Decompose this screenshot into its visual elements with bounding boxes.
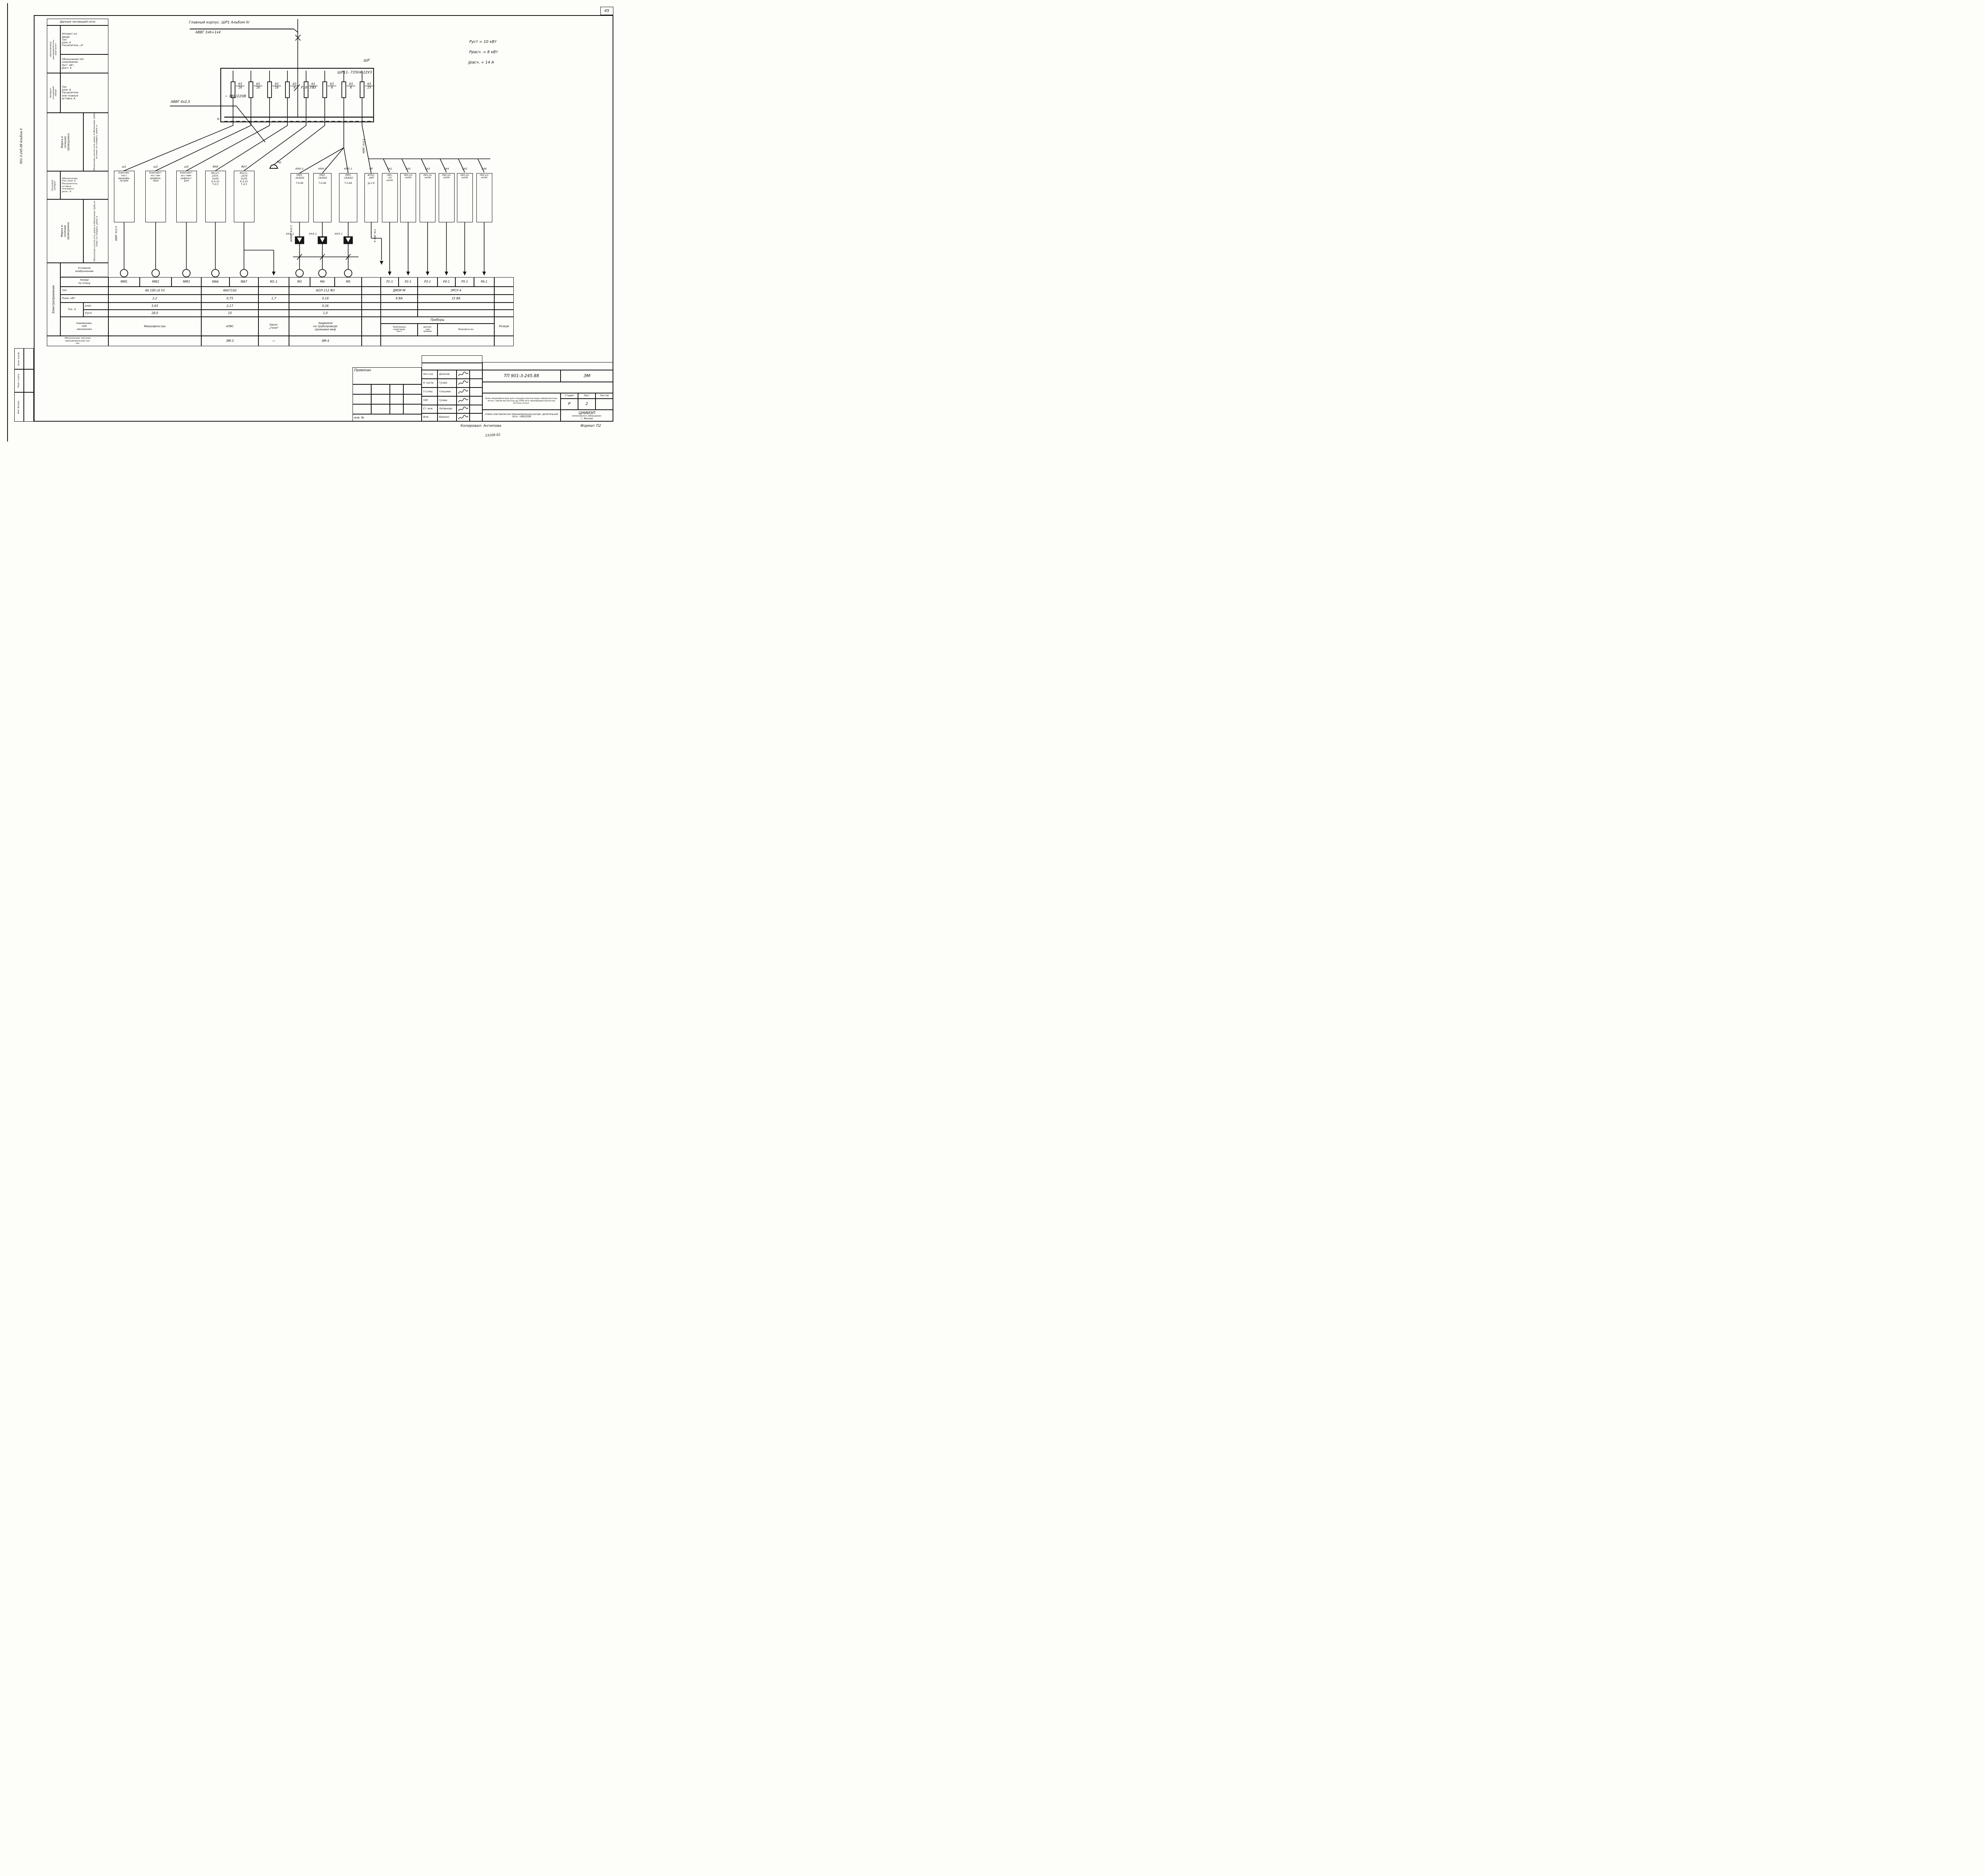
tb-name: Гусева — [437, 379, 457, 388]
margin-stamp-blank-1 — [24, 369, 34, 392]
starter-label-ш1: ш1 — [113, 165, 135, 168]
table-ipusk-cell — [418, 310, 494, 317]
table-pnom-cell — [494, 295, 514, 303]
table-inom-cell: 2,17 — [201, 303, 258, 310]
sidebar-wire-mark-1: Марка и сечение проводника — [47, 113, 83, 171]
tb-grid-cell — [390, 394, 403, 404]
sidebar-header: Данные питающей сети — [47, 19, 108, 25]
starter-box-ш3: Комплект- но с мик- рофильт- ром — [176, 171, 197, 222]
feeder-cable: АВВГ 3х6+1х4 — [195, 31, 275, 35]
table-type-cell: ЭРСУ-4 — [418, 287, 494, 295]
table-pnom-cell: 0,75 — [201, 295, 258, 303]
starter-box-QF: АП50- -2МТ Jр-1,6 — [364, 173, 378, 222]
tb-inv: инв. № — [353, 414, 422, 422]
starter-label-SA5: SA5 — [454, 168, 476, 171]
starter-label-КМ5-1: КМ5-1 — [337, 168, 359, 171]
table-plan-cell: М4 — [310, 277, 335, 287]
sidebar-type: тип — [60, 287, 108, 295]
tb-signature — [457, 388, 470, 396]
feeder-title: Главный корпус. ШР1 Альбом IV — [189, 21, 304, 25]
tb-date — [470, 370, 482, 379]
table-pnom-cell: 15 ВА — [418, 295, 494, 303]
tb-name: Воронко — [437, 413, 457, 422]
table-pnom-cell — [362, 295, 381, 303]
table-type-cell: ДМЭР-М — [381, 287, 418, 295]
table-pnom-cell: 1,7 — [258, 295, 289, 303]
margin-stamp-blank-0 — [24, 348, 34, 369]
tb-sheet: 2 — [578, 399, 595, 410]
sidebar-outgoing-rot: Аппарат отходящей линии — [47, 73, 60, 113]
tb-date — [470, 396, 482, 405]
table-name-cell: Насос „Гном“ — [258, 317, 289, 336]
table-pribory-cell: дренаж- ный приямок — [418, 324, 437, 336]
starter-label-SA2: SA2 — [397, 168, 419, 171]
sidebar-starter-rot: Пусковой аппарат — [47, 171, 60, 199]
tb-grid-cell — [353, 394, 371, 404]
sidebar-input-apparatus: Аппарат на вводе Тип Jном. А Расцепитель… — [60, 25, 108, 54]
table-plan-cell: Р1-1 — [381, 277, 399, 287]
tb-doc: ТП 901-3-245.88 — [482, 370, 561, 382]
table-pribory-cell: Трубопровод сырой воды поз.1 — [381, 324, 418, 336]
table-plan-cell: МА7 — [229, 277, 258, 287]
table-pnom-cell: 2,2 — [108, 295, 201, 303]
tb-grid-cell — [353, 404, 371, 414]
table-draw-cell — [362, 336, 381, 346]
table-plan-cell — [362, 277, 381, 287]
starter-box-ЯА7: Я5111- -2474 УхЛ4 К-3,15 Т-2,5 — [234, 171, 254, 222]
table-draw-cell: — — [258, 336, 289, 346]
tb-grid-cell — [353, 384, 371, 394]
table-type-cell: 4АХ71А2 — [201, 287, 258, 295]
margin-stamp-2: Инв. №подл. — [14, 392, 24, 422]
tb-stage-h: Стадия — [561, 393, 578, 399]
starter-box-SA5: ПВЗ-10/ /м356 — [457, 173, 473, 222]
tb-grid-cell — [390, 404, 403, 414]
cable-label-kk: АКВВГ 4х2,5 — [290, 215, 296, 253]
load-info-pust: Руст = 10 кВт — [469, 40, 529, 44]
table-name-cell: АПВС — [201, 317, 258, 336]
voltage-label: ~ 380/220В — [225, 94, 268, 99]
cable-label-qf: АВВГ 4х2,5 — [362, 126, 369, 166]
sidebar-symbol: Условное изображение — [60, 263, 108, 277]
tb-stage: Р — [561, 399, 578, 410]
table-name-cell: Задвижки на трубопроводе промывки мкф — [289, 317, 362, 336]
tb-grid-cell — [403, 394, 422, 404]
table-plan-cell: ММ1 — [108, 277, 140, 287]
table-pnom-cell: 0,18 — [289, 295, 362, 303]
margin-stamp-blank-2 — [24, 392, 34, 422]
sidebar-wire-fine-2: Обозначение участка сети; длина, м Обозн… — [83, 199, 108, 263]
tb-org: ЦНИИЭПинженерного оборудован.г. Москва — [561, 410, 613, 422]
tb-head-row1 — [422, 355, 482, 363]
fuse-rating: 636 — [309, 83, 318, 89]
table-pribory-header: Приборы — [381, 317, 494, 324]
table-pribory-cell: Микрофильтры — [437, 324, 494, 336]
tb-top-empty — [482, 362, 613, 370]
tb-code: ЭМ — [561, 370, 613, 382]
table-type-cell — [258, 287, 289, 295]
table-draw-cell — [108, 336, 201, 346]
starter-label-ЯА6: ЯА6 — [204, 165, 227, 168]
starter-box-КМ4-1: ПМЛ- -163002 Т-0,4А — [313, 173, 331, 222]
tb-name: Гусева — [437, 396, 457, 405]
tb-signature — [457, 379, 470, 388]
starter-label-ш3: ш3 — [175, 165, 198, 168]
sidebar-wire-mark-2: Марка и сечение проводника — [47, 199, 83, 263]
table-plan-cell: Р2-1 — [399, 277, 418, 287]
table-draw-cell: ЭМ-3 — [201, 336, 258, 346]
fuse-rating: 636 — [347, 83, 355, 89]
sidebar-draw: Обозначение чертежа принципиальной схе- … — [47, 336, 108, 346]
relay-label-КК4-1: КК4-1 — [303, 233, 317, 236]
tb-role: ГИП — [422, 396, 437, 405]
tb-grid-cell — [390, 384, 403, 394]
fuse-rating: 6316 — [254, 83, 262, 89]
starter-label-КМ3-1: КМ3-1 — [289, 168, 311, 171]
sidebar-tok: Ток. А — [60, 303, 83, 317]
tb-role: Инж. — [422, 413, 437, 422]
table-inom-cell — [381, 303, 418, 310]
sidebar-starter-cell: Обозначение, Тип; Jном. А Расцепитель; у… — [60, 171, 108, 199]
table-plan-cell — [494, 277, 514, 287]
tb-name: Литвинова — [437, 405, 457, 413]
tb-role: Гл.спец — [422, 388, 437, 396]
table-ipusk-cell — [494, 310, 514, 317]
drawing-sheet: 45 Главный корпус. ШР1 Альбом IV АВВГ 3х… — [0, 0, 622, 445]
starter-box-ш2: Комплект- но с ми- крофиль- тром — [145, 171, 166, 222]
table-plan-cell: М1-1 — [258, 277, 289, 287]
tb-grid-cell — [371, 394, 390, 404]
table-plan-cell: М3 — [289, 277, 310, 287]
starter-box-SA3: ПВЗ-10/ /м356 — [420, 173, 436, 222]
table-reserve-cell: Резерв — [494, 317, 514, 336]
starter-label-ЯА7: ЯА7 — [233, 165, 255, 168]
table-inom-cell — [418, 303, 494, 310]
bell-label: Рш — [277, 160, 289, 164]
tb-date — [470, 413, 482, 422]
table-ipusk-cell — [362, 310, 381, 317]
tb-sheets-h: Листов — [595, 393, 613, 399]
tb-sheet-title: Схема электрическая принципиальная распр… — [482, 410, 561, 422]
table-type-cell — [362, 287, 381, 295]
tb-head-row2 — [422, 363, 482, 370]
table-inom-cell — [258, 303, 289, 310]
load-info-prasch: Ррасч. = 8 кВт — [469, 50, 529, 54]
panel-label: ШР — [364, 59, 380, 63]
fuse-rating: 6316 — [236, 83, 245, 89]
sidebar-busway-rot: Шинопровод распределитель- ный пункт — [47, 25, 60, 73]
sidebar-plan: Номер по плану — [60, 277, 108, 287]
fuse-rating: 636 — [290, 83, 299, 89]
table-ipusk-cell: 1,0 — [289, 310, 362, 317]
panel-type: ШР11- 73504-22У3 — [316, 71, 372, 75]
relay-label-КК5-1: КК5-1 — [328, 233, 343, 236]
starter-label-SA6: SA6 — [473, 168, 495, 171]
cable-label-sh1: АВВГ 4х2,5 — [115, 217, 121, 251]
table-plan-cell: МА6 — [201, 277, 229, 287]
starter-box-ЯА6: Я5111- 2474- УхЛ4 К-3,15 Т-2,5 — [205, 171, 226, 222]
table-plan-cell: Р3-1 — [418, 277, 437, 287]
sidebar-pnom: Рном. кВт — [60, 295, 108, 303]
margin-stamp-0: Взам. инв.№ — [14, 348, 24, 369]
sidebar-outgoing-apparatus: Тип Jном. А Расцепитель или плавкая вста… — [60, 73, 108, 113]
sidebar-inom: Jном. — [83, 303, 108, 310]
table-draw-cell: ЭМ-4 — [289, 336, 362, 346]
starter-box-SA2: ПВЗ-10/ /м356 — [400, 173, 416, 222]
tb-role: Н. контр — [422, 379, 437, 388]
table-name-cell — [362, 317, 381, 336]
side-album-label: 901-3-245.88 Альбом II — [20, 118, 26, 174]
starter-box-SA4: ПВЗ-10/ /м356 — [439, 173, 455, 222]
tb-grid-cell — [403, 404, 422, 414]
fuse-rating: 636 — [328, 83, 336, 89]
tb-signature — [457, 396, 470, 405]
neutral-label: N — [217, 118, 223, 121]
table-plan-cell: Р4-1 — [437, 277, 455, 287]
starter-box-SA1: ПВЗ- -10/ /м356 — [382, 173, 398, 222]
starter-box-SA6: ПВЗ-10/ /м356 — [476, 173, 492, 222]
starter-box-КМ5-1: ПМЛ- -163002 Т-0,4А — [339, 173, 357, 222]
load-info-irasch: Jрасч. = 14 А — [468, 60, 528, 65]
table-ipusk-cell — [258, 310, 289, 317]
tb-name: Данилов — [437, 370, 457, 379]
tb-empty-band — [482, 382, 613, 393]
starter-label-ш2: ш2 — [145, 165, 167, 168]
table-type-cell — [494, 287, 514, 295]
cable-label-out: К ВВГ 4х1 — [374, 217, 380, 255]
margin-stamp-1: Подп. и дата — [14, 369, 24, 392]
tb-org3: г. Москва — [581, 418, 593, 420]
table-inom-cell: 5,65 — [108, 303, 201, 310]
sidebar-consumer-rot: Электроприемник — [47, 263, 60, 336]
tb-role: Ст. инж — [422, 405, 437, 413]
sidebar-mech: Наименова- ние механизма — [60, 317, 108, 336]
table-ipusk-cell: 28,0 — [108, 310, 201, 317]
table-ipusk-cell: 10 — [201, 310, 258, 317]
table-plan-cell: ММ2 — [140, 277, 172, 287]
tb-role: Нач отд — [422, 370, 437, 379]
copied-by: Копировал: Антипова — [461, 424, 544, 428]
table-ipusk-cell — [381, 310, 418, 317]
tb-signature — [457, 413, 470, 422]
tb-name: Гольцман — [437, 388, 457, 396]
table-draw-cell — [494, 336, 514, 346]
fuse-rating: 6325 — [365, 83, 374, 89]
table-type-cell: АОЛ-112 Ф3 — [289, 287, 362, 295]
table-inom-cell: 0,36 — [289, 303, 362, 310]
tb-signature — [457, 405, 470, 413]
table-plan-cell: ММ3 — [172, 277, 201, 287]
tb-date — [470, 405, 482, 413]
tb-bind: Привязан — [353, 367, 422, 384]
fuse-rating: 6316 — [272, 83, 281, 89]
sidebar-ipusk: Jпуск. — [83, 310, 108, 317]
tb-grid-cell — [371, 404, 390, 414]
tb-sheets — [595, 399, 613, 410]
table-draw-cell — [381, 336, 494, 346]
starter-label-КМ4-1: КМ4-1 — [311, 168, 333, 171]
table-plan-cell: М5 — [335, 277, 362, 287]
tb-sheet-h: Лист — [578, 393, 595, 399]
tb-date — [470, 379, 482, 388]
table-plan-cell: Р5-1 — [455, 277, 474, 287]
table-inom-cell — [362, 303, 381, 310]
tb-date — [470, 388, 482, 396]
table-pnom-cell: 8 ВА — [381, 295, 418, 303]
sidebar-wire-fine-1: Обозначение участка сети; длина, м Обозн… — [83, 113, 108, 171]
tb-project: Блок микрофильтров для станции очистки в… — [482, 393, 561, 410]
tb-signature — [457, 370, 470, 379]
format-label: Формат П2 — [580, 424, 616, 428]
starter-box-ш1: Комплек- тно с микрофи- льтром — [114, 171, 135, 222]
table-inom-cell — [494, 303, 514, 310]
branch-cable-label: АВВГ 4х2,5 — [171, 100, 234, 104]
tb-grid-cell — [403, 384, 422, 394]
tb-grid-cell — [371, 384, 390, 394]
sidebar-designation-voltage: Обозначение,тип напряжение, Руст. кВт, J… — [60, 54, 108, 73]
table-plan-cell: Р6-1 — [474, 277, 494, 287]
table-type-cell: 4А 100 L6 У3 — [108, 287, 201, 295]
table-name-cell: Микрофильтры — [108, 317, 201, 336]
